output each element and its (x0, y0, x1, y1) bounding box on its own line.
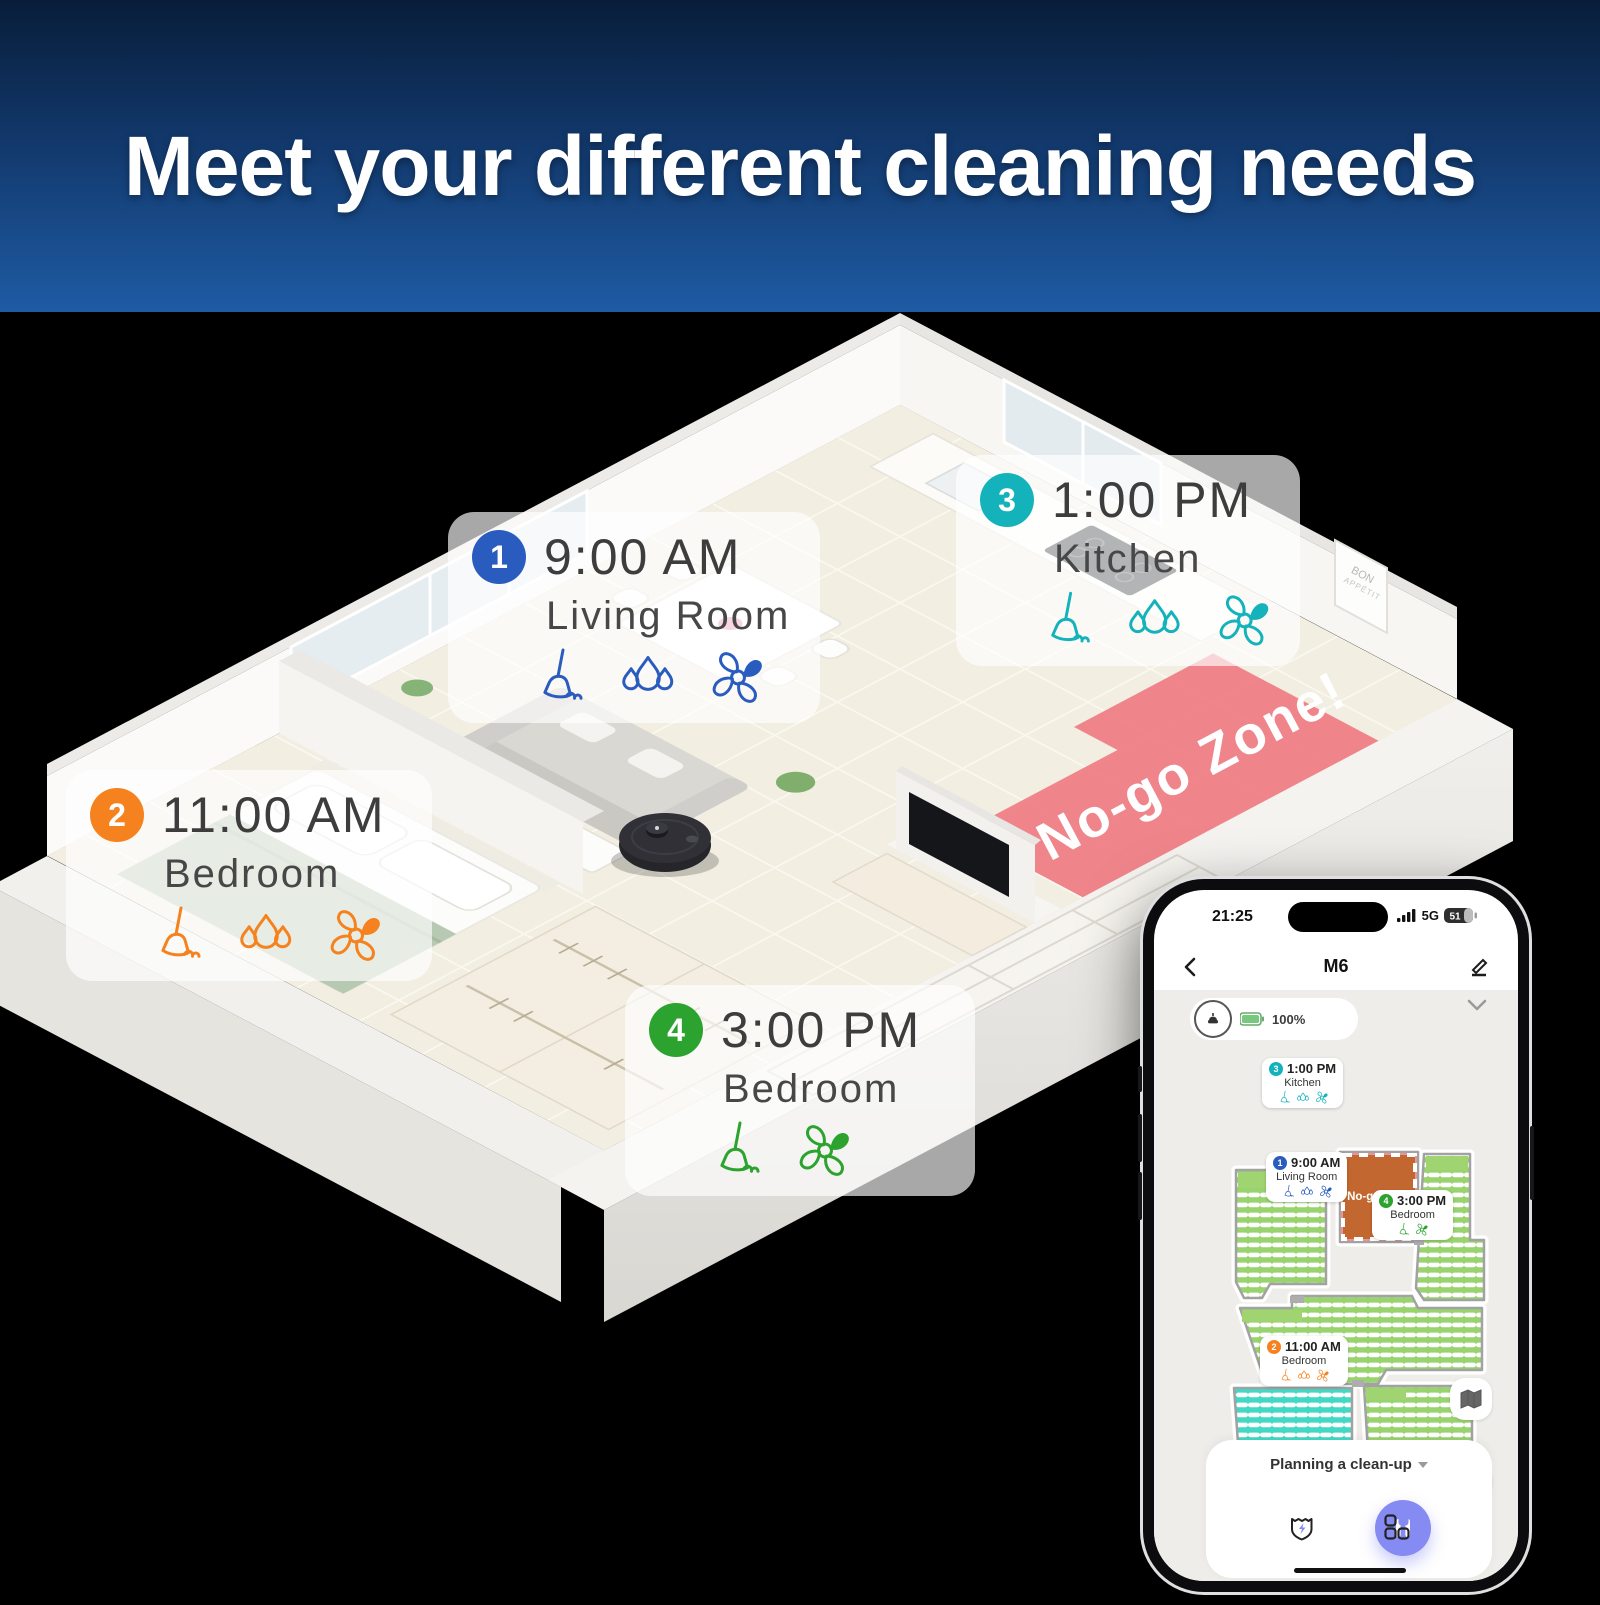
phone-mute-switch (1138, 1066, 1142, 1092)
phone-volume-up-button (1138, 1114, 1142, 1162)
mop-water-icon (1300, 1184, 1314, 1198)
vacuum-icon (1036, 588, 1095, 648)
vacuum-icon (528, 645, 588, 705)
battery-icon: 51 (1444, 907, 1478, 924)
schedule-card-bedroom-pm: 4 3:00 PM Bedroom (625, 985, 975, 1196)
mop-water-icon (1297, 1368, 1311, 1382)
edit-icon[interactable] (1468, 956, 1490, 978)
phone-power-button (1530, 1126, 1534, 1200)
map-card-bedroom-pm[interactable]: 4 3:00 PM Bedroom (1372, 1190, 1453, 1240)
fan-icon (1315, 1090, 1329, 1104)
schedule-number-badge: 3 (980, 473, 1034, 527)
mop-water-icon (1296, 1090, 1310, 1104)
vacuum-icon (1396, 1222, 1410, 1236)
robot-avatar (1194, 1000, 1232, 1038)
map-time: 3:00 PM (1397, 1193, 1446, 1208)
home-indicator[interactable] (1294, 1568, 1406, 1573)
schedule-room: Living Room (546, 594, 794, 639)
map-room-label: Bedroom (1379, 1209, 1446, 1221)
fan-icon (1316, 1368, 1330, 1382)
more-modes-button[interactable] (1384, 1514, 1410, 1540)
network-label: 5G (1422, 908, 1439, 923)
vacuum-icon (1281, 1184, 1295, 1198)
map-badge: 4 (1379, 1194, 1393, 1208)
schedule-card-bedroom-am: 2 11:00 AM Bedroom (66, 770, 432, 981)
schedule-time: 1:00 PM (1052, 471, 1252, 529)
schedule-room: Bedroom (723, 1067, 949, 1112)
map-card-living-room[interactable]: 1 9:00 AM Living Room (1266, 1152, 1347, 1202)
vacuum-icon (146, 903, 206, 963)
status-bar: 21:25 5G 51 (1154, 890, 1518, 946)
lightning-icon (1299, 1523, 1306, 1534)
dropdown-caret-icon (1418, 1462, 1428, 1468)
fan-icon (708, 645, 768, 705)
robot-battery-percent: 100% (1272, 1012, 1305, 1027)
schedule-time: 3:00 PM (721, 1001, 921, 1059)
map-time: 9:00 AM (1291, 1155, 1340, 1170)
map-card-kitchen[interactable]: 3 1:00 PM Kitchen (1262, 1058, 1343, 1108)
map-badge: 3 (1269, 1062, 1283, 1076)
mop-water-icon (236, 903, 296, 963)
map-icon (1460, 1389, 1482, 1409)
fan-icon (1415, 1222, 1429, 1236)
schedule-room: Bedroom (164, 852, 406, 897)
robot-battery-icon (1240, 1012, 1264, 1026)
map-layers-button[interactable] (1450, 1378, 1492, 1420)
map-badge: 2 (1267, 1340, 1281, 1354)
map-card-bedroom-am[interactable]: 2 11:00 AM Bedroom (1260, 1336, 1348, 1386)
map-room-label: Kitchen (1269, 1077, 1336, 1089)
schedule-time: 9:00 AM (544, 528, 741, 586)
vacuum-icon (1278, 1368, 1292, 1382)
schedule-card-kitchen: 3 1:00 PM Kitchen (956, 455, 1300, 666)
header-banner: Meet your different cleaning needs (0, 0, 1600, 312)
device-title: M6 (1154, 956, 1518, 977)
fan-icon (1319, 1184, 1333, 1198)
spot-protect-button[interactable] (1288, 1514, 1316, 1542)
mop-water-icon (1125, 588, 1184, 648)
app-nav-bar: M6 (1154, 946, 1518, 992)
control-panel: Planning a clean-up (1206, 1440, 1492, 1578)
robot-status-card[interactable]: 100% (1190, 998, 1358, 1040)
svg-text:51: 51 (1449, 912, 1461, 923)
signal-icon (1397, 909, 1417, 923)
map-time: 11:00 AM (1285, 1339, 1341, 1354)
schedule-time: 11:00 AM (162, 786, 386, 844)
robot-icon (1205, 1011, 1221, 1027)
status-time: 21:25 (1212, 908, 1253, 926)
schedule-room: Kitchen (1054, 537, 1274, 582)
map-room-label: Bedroom (1267, 1355, 1341, 1367)
map-room-label: Living Room (1273, 1171, 1340, 1183)
map-time: 1:00 PM (1287, 1061, 1336, 1076)
cleaning-mode-dropdown[interactable]: Planning a clean-up (1206, 1456, 1492, 1473)
page-title: Meet your different cleaning needs (0, 118, 1600, 215)
vacuum-icon (1277, 1090, 1291, 1104)
phone-mockup: 21:25 5G 51 (1140, 876, 1532, 1595)
phone-screen: 21:25 5G 51 (1154, 890, 1518, 1581)
mop-water-icon (618, 645, 678, 705)
phone-volume-down-button (1138, 1172, 1142, 1220)
schedule-card-living-room: 1 9:00 AM Living Room (448, 512, 820, 723)
vacuum-icon (705, 1118, 765, 1178)
fan-icon (326, 903, 386, 963)
dynamic-island (1288, 902, 1388, 932)
fan-icon (795, 1118, 855, 1178)
schedule-number-badge: 2 (90, 788, 144, 842)
collapse-chevron-icon[interactable] (1466, 998, 1488, 1012)
fan-icon (1215, 588, 1274, 648)
schedule-number-badge: 1 (472, 530, 526, 584)
schedule-number-badge: 4 (649, 1003, 703, 1057)
map-badge: 1 (1273, 1156, 1287, 1170)
